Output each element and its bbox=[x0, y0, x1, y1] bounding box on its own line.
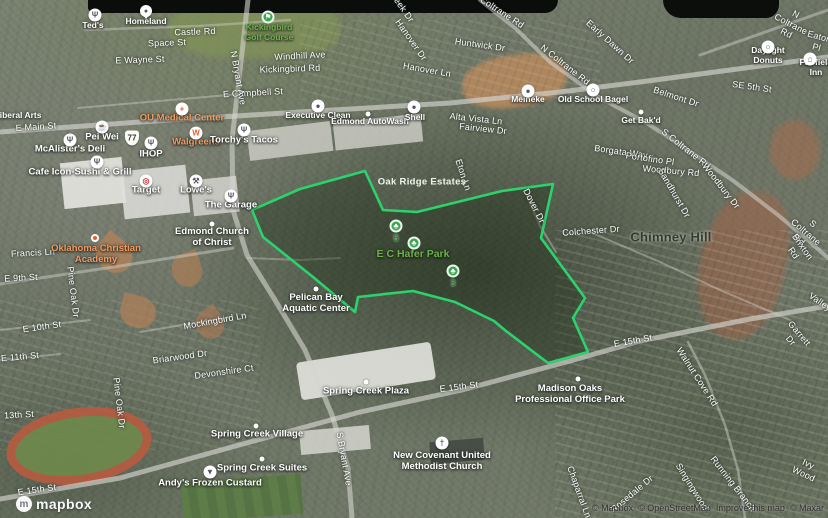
target-bullseye-icon[interactable]: ◎ bbox=[140, 175, 153, 188]
lowes-wrench-icon[interactable]: ⚒ bbox=[190, 175, 203, 188]
ihop-restaurant-icon[interactable]: Ψ bbox=[145, 137, 158, 150]
pelican-bay-dot-icon[interactable] bbox=[314, 287, 319, 292]
new-covenant-church-icon[interactable]: † bbox=[436, 437, 449, 450]
get-bakd-dot-icon[interactable] bbox=[639, 110, 644, 115]
fairfield-inn-lodging-icon[interactable]: ⌂ bbox=[804, 53, 817, 66]
mapbox-logo-text: mapbox bbox=[36, 496, 92, 512]
teds-restaurant-icon[interactable]: Ψ bbox=[89, 9, 102, 22]
hafer-park-tree-icon[interactable]: ♣ bbox=[408, 237, 421, 250]
road-north-side bbox=[85, 20, 290, 30]
hafer-park-marker-5-number: 5 bbox=[393, 233, 398, 243]
road-e-15th-st bbox=[0, 306, 828, 499]
homeland-pin-icon[interactable]: ● bbox=[140, 5, 152, 17]
spring-creek-plaza-dot-icon[interactable] bbox=[364, 380, 369, 385]
ou-medical-cross-icon[interactable]: + bbox=[176, 103, 189, 116]
kickingbird-golf-icon[interactable]: ⚑ bbox=[262, 11, 275, 24]
attribution-link-3[interactable]: © Maxar bbox=[790, 503, 824, 513]
mapbox-logo[interactable]: m mapbox bbox=[16, 496, 92, 512]
edmond-autowash-dot-icon[interactable] bbox=[366, 112, 371, 117]
attribution-bar: © Mapbox© OpenStreetMapImprove this map©… bbox=[592, 503, 824, 513]
road-e-9th-st bbox=[0, 248, 233, 284]
mapbox-logo-icon: m bbox=[16, 496, 32, 512]
road-campbell-st bbox=[78, 94, 240, 108]
attribution-link-1[interactable]: © OpenStreetMap bbox=[638, 503, 711, 513]
spring-creek-village-dot-icon[interactable] bbox=[254, 424, 259, 429]
andys-custard-icon[interactable]: ▼ bbox=[204, 466, 217, 479]
attribution-link-2[interactable]: Improve this map bbox=[716, 503, 785, 513]
daylight-donuts-icon[interactable]: ○ bbox=[762, 41, 775, 54]
cafe-icon-restaurant-icon[interactable]: Ψ bbox=[91, 156, 104, 169]
attribution-link-0[interactable]: © Mapbox bbox=[592, 503, 633, 513]
hafer-park-marker-5[interactable]: ♣ bbox=[390, 220, 403, 233]
hafer-park-marker-3-number: 3 bbox=[450, 278, 455, 288]
road-network bbox=[0, 0, 828, 518]
madison-oaks-dot-icon[interactable] bbox=[576, 377, 581, 382]
walgreens-icon[interactable]: W bbox=[190, 127, 203, 140]
road-mockingbird-ln bbox=[140, 317, 230, 332]
road-e-2nd-st bbox=[0, 57, 828, 132]
the-garage-restaurant-icon[interactable]: Ψ bbox=[225, 190, 238, 203]
road-walnut-cove-rd bbox=[688, 342, 745, 518]
spring-creek-suites-dot-icon[interactable] bbox=[260, 457, 265, 462]
pei-wei-cup-icon[interactable]: ☕ bbox=[96, 121, 109, 134]
old-school-bagel-icon[interactable]: ○ bbox=[587, 84, 600, 97]
road-10th-11th bbox=[0, 320, 90, 360]
edmond-church-dot-icon[interactable] bbox=[210, 222, 215, 227]
mcalisters-restaurant-icon[interactable]: Ψ bbox=[64, 134, 77, 147]
shell-fuel-icon[interactable]: ● bbox=[408, 101, 421, 114]
meineke-car-icon[interactable]: ● bbox=[522, 85, 535, 98]
hafer-park-marker-3[interactable]: ♣ bbox=[447, 265, 460, 278]
torchys-restaurant-icon[interactable]: Ψ bbox=[238, 124, 251, 137]
road-chimney-hill bbox=[590, 232, 790, 320]
map-canvas[interactable]: Castle RdSpace StE Wayne StE Campbell St… bbox=[0, 0, 828, 518]
executive-clean-car-icon[interactable]: ● bbox=[312, 100, 325, 113]
ok-christian-academy-dot-icon[interactable] bbox=[91, 234, 99, 242]
